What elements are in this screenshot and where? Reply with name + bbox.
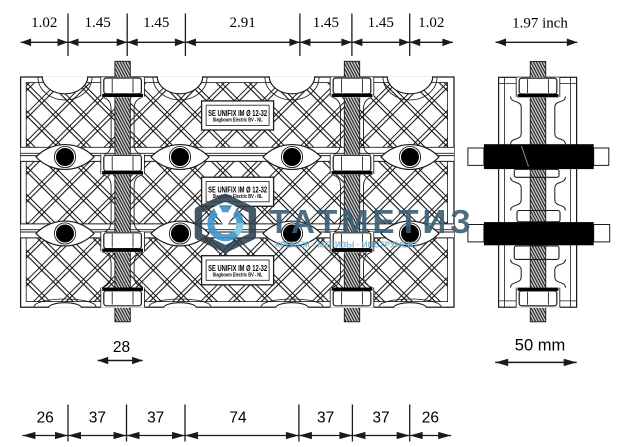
svg-text:ТАТМЕТИЗ: ТАТМЕТИЗ (269, 203, 475, 240)
svg-text:2.91: 2.91 (229, 15, 255, 31)
svg-text:Slagboom Electric BV - NL: Slagboom Electric BV - NL (213, 118, 263, 124)
svg-text:50 mm: 50 mm (515, 337, 565, 355)
svg-text:37: 37 (317, 409, 334, 426)
svg-text:1.45: 1.45 (143, 15, 169, 31)
svg-text:74: 74 (229, 409, 247, 426)
svg-text:КРЕПЕЖ · МЕТИЗЫ · ИНСТРУМЕНТ: КРЕПЕЖ · МЕТИЗЫ · ИНСТРУМЕНТ (275, 240, 419, 250)
svg-text:1.97 inch: 1.97 inch (512, 16, 568, 32)
svg-text:26: 26 (37, 409, 54, 426)
svg-text:37: 37 (372, 409, 389, 426)
svg-text:1.45: 1.45 (313, 15, 339, 31)
svg-text:26: 26 (422, 409, 439, 426)
svg-text:37: 37 (89, 409, 106, 426)
svg-text:1.45: 1.45 (368, 15, 394, 31)
svg-text:37: 37 (147, 409, 164, 426)
svg-text:Slagboom Electric BV - NL: Slagboom Electric BV - NL (213, 272, 263, 278)
svg-text:1.45: 1.45 (84, 15, 110, 31)
svg-text:1.02: 1.02 (31, 15, 57, 31)
svg-text:28: 28 (113, 339, 130, 356)
svg-text:1.02: 1.02 (418, 15, 444, 31)
